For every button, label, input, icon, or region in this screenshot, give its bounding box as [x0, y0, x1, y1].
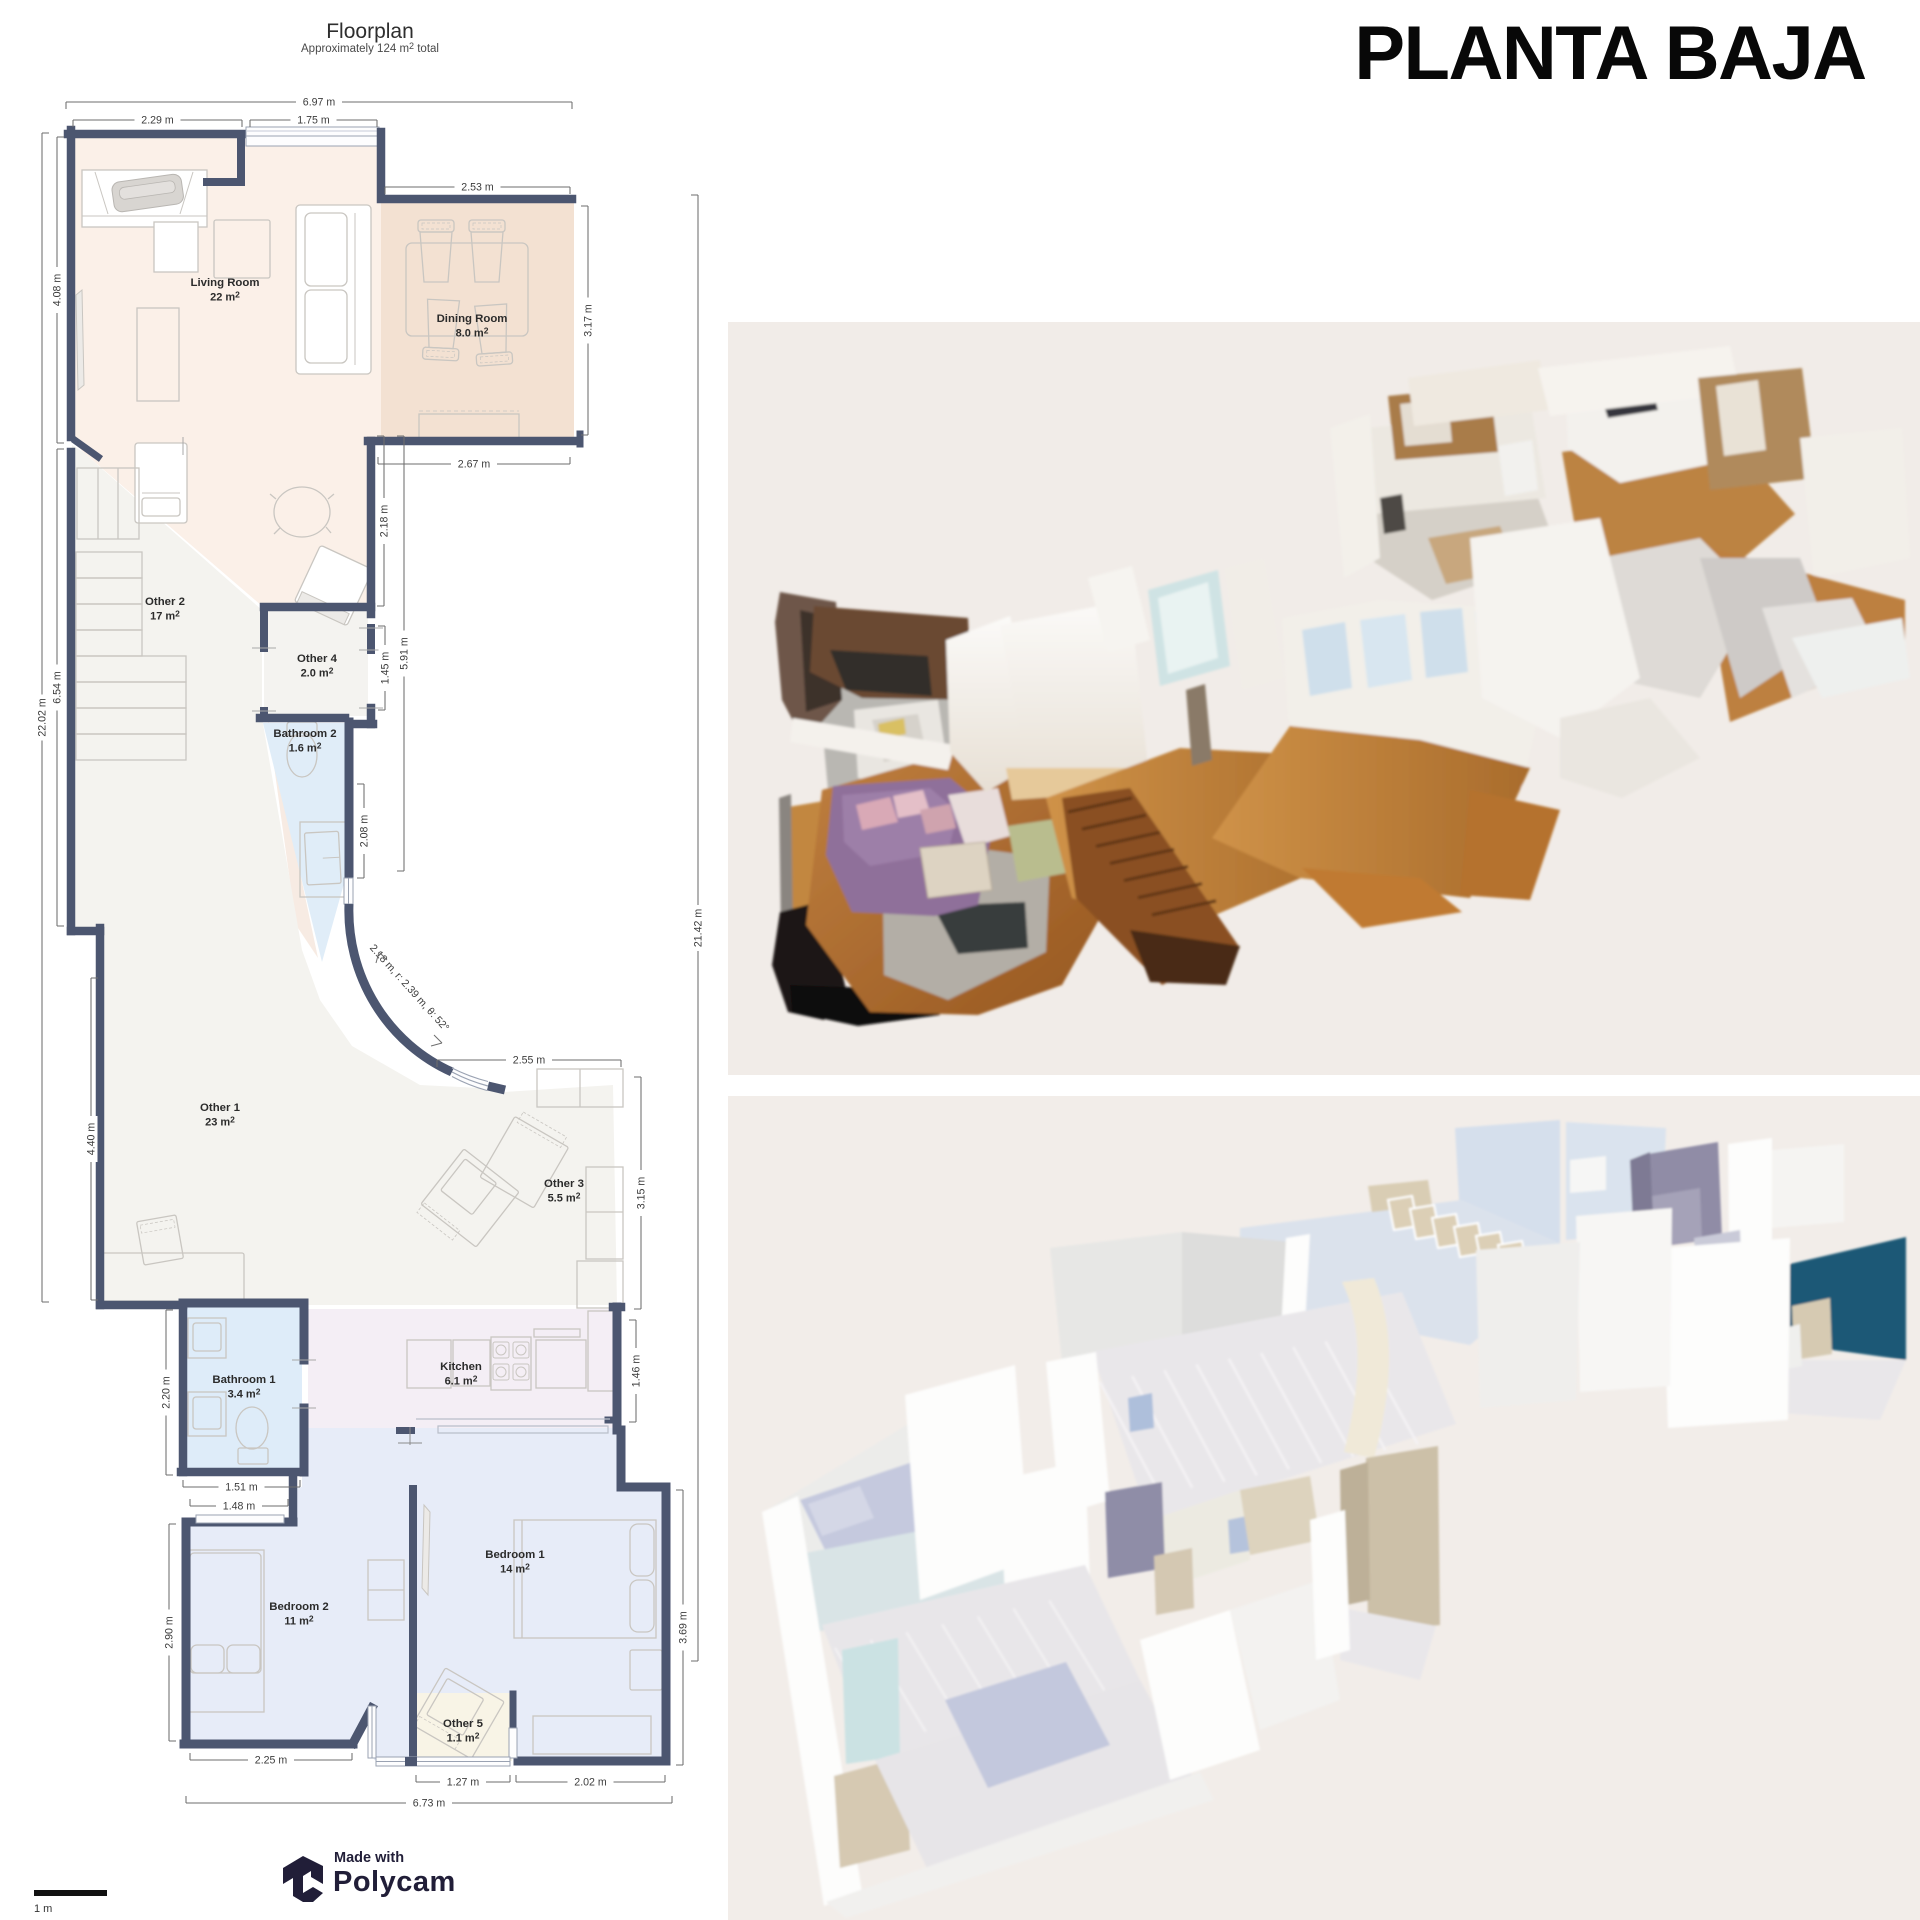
svg-text:Kitchen: Kitchen: [440, 1361, 482, 1373]
svg-text:1.46 m: 1.46 m: [631, 1355, 643, 1388]
svg-text:5.91 m: 5.91 m: [399, 637, 411, 670]
svg-text:Other 3: Other 3: [544, 1178, 584, 1190]
svg-text:22.02 m: 22.02 m: [37, 698, 49, 736]
svg-text:2.20 m: 2.20 m: [161, 1376, 173, 1409]
svg-text:4.40 m: 4.40 m: [86, 1123, 98, 1156]
svg-text:Dining Room: Dining Room: [437, 313, 508, 325]
svg-text:3.17 m: 3.17 m: [583, 304, 595, 337]
svg-text:Other 2: Other 2: [145, 596, 185, 608]
svg-text:2.55 m: 2.55 m: [513, 1055, 546, 1067]
svg-text:2.02 m: 2.02 m: [574, 1777, 607, 1789]
svg-text:1.48 m: 1.48 m: [223, 1501, 256, 1513]
svg-text:6.97 m: 6.97 m: [303, 97, 336, 109]
svg-text:2.18 m, r: 2.39 m, θ: 52°: 2.18 m, r: 2.39 m, θ: 52°: [367, 942, 451, 1034]
svg-text:21.42 m: 21.42 m: [693, 909, 705, 947]
svg-text:2.67 m: 2.67 m: [458, 459, 491, 471]
svg-text:2.25 m: 2.25 m: [255, 1755, 288, 1767]
svg-text:Other 4: Other 4: [297, 653, 338, 665]
svg-text:3.69 m: 3.69 m: [678, 1611, 690, 1644]
svg-text:2.90 m: 2.90 m: [164, 1616, 176, 1649]
svg-text:4.08 m: 4.08 m: [52, 274, 64, 307]
svg-text:Made with: Made with: [334, 1850, 404, 1866]
svg-text:Bedroom 1: Bedroom 1: [485, 1549, 545, 1561]
svg-text:2.18 m: 2.18 m: [379, 505, 391, 538]
svg-text:6.54 m: 6.54 m: [52, 671, 64, 704]
svg-text:Polycam: Polycam: [333, 1866, 456, 1898]
svg-text:Bathroom 2: Bathroom 2: [273, 728, 336, 740]
svg-text:1.27 m: 1.27 m: [447, 1777, 480, 1789]
svg-text:Other 1: Other 1: [200, 1102, 241, 1114]
svg-text:2.53 m: 2.53 m: [461, 182, 494, 194]
svg-text:Bathroom 1: Bathroom 1: [212, 1374, 276, 1386]
svg-text:Floorplan: Floorplan: [326, 20, 414, 43]
svg-text:2.29 m: 2.29 m: [141, 115, 174, 127]
svg-text:Other 5: Other 5: [443, 1718, 484, 1730]
svg-text:3.15 m: 3.15 m: [636, 1177, 648, 1210]
svg-text:6.73 m: 6.73 m: [413, 1798, 446, 1810]
svg-text:1 m: 1 m: [34, 1903, 52, 1915]
svg-text:Living Room: Living Room: [191, 277, 260, 289]
svg-text:1.51 m: 1.51 m: [225, 1482, 258, 1494]
svg-text:Approximately 124 m2 total: Approximately 124 m2 total: [301, 41, 439, 55]
svg-text:1.45 m: 1.45 m: [380, 652, 392, 685]
svg-text:Bedroom 2: Bedroom 2: [269, 1601, 329, 1613]
svg-text:1.75 m: 1.75 m: [297, 115, 330, 127]
svg-text:2.08 m: 2.08 m: [359, 815, 371, 848]
